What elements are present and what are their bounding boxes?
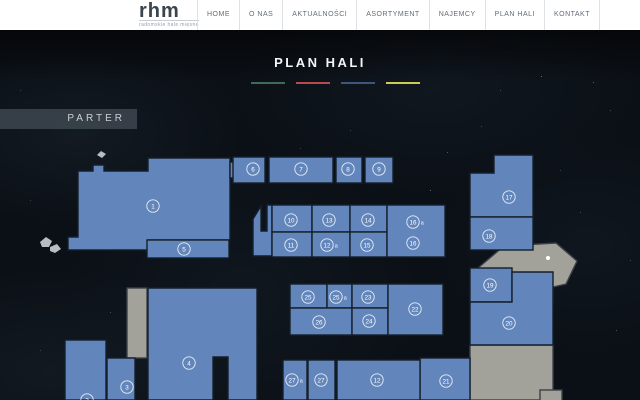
svg-text:17: 17 [505,194,513,201]
legend-dash-1 [251,82,285,84]
svg-text:1: 1 [151,203,155,210]
svg-text:21: 21 [442,378,450,385]
svg-text:a: a [300,378,303,384]
svg-text:25: 25 [332,294,340,301]
unit-4[interactable] [148,288,257,400]
svg-text:a: a [344,295,347,301]
svg-text:3: 3 [125,384,129,391]
svg-text:4: 4 [187,360,191,367]
plan-legend [251,82,420,84]
legend-dash-4 [386,82,420,84]
svg-text:14: 14 [364,217,372,224]
site-header: rhm radomskie hale mięsne HOMEO NASAKTUA… [0,0,640,30]
unit-1[interactable] [68,158,230,250]
svg-text:11: 11 [288,242,295,249]
nav-item-najemcy[interactable]: NAJEMCY [430,0,486,30]
svg-text:8: 8 [346,166,350,173]
rock-3 [97,151,106,158]
nav-item-asortyment[interactable]: ASORTYMENT [357,0,430,30]
unit-2[interactable] [65,340,106,400]
svg-text:10: 10 [287,217,295,224]
svg-text:19: 19 [486,282,494,289]
unit-18[interactable] [470,217,533,250]
floor-label: PARTER [0,109,137,129]
unit-6[interactable] [233,157,265,183]
svg-text:24: 24 [365,318,373,325]
svg-text:27: 27 [317,377,325,384]
gray-strip [127,288,147,358]
legend-dash-2 [296,82,330,84]
unit-3[interactable] [107,358,135,400]
nav-item-aktualno-ci[interactable]: AKTUALNOŚCI [283,0,357,30]
svg-text:9: 9 [377,166,381,173]
gray-box-small [540,390,562,400]
nav-item-home[interactable]: HOME [197,0,240,30]
svg-text:6: 6 [251,166,255,173]
svg-text:26: 26 [315,319,323,326]
svg-text:25: 25 [304,294,312,301]
marker-dot [546,256,550,260]
nav-item-kontakt[interactable]: KONTAKT [545,0,600,30]
svg-text:15: 15 [363,242,371,249]
svg-text:a: a [421,220,424,226]
logo-text: rhm [139,2,199,20]
page: 15678917181013141112a1516a162525a2326242… [0,0,640,400]
rock-1 [40,237,52,247]
unit-5[interactable] [147,240,229,258]
legend-dash-3 [341,82,375,84]
svg-text:a: a [335,243,338,249]
main-nav: HOMEO NASAKTUALNOŚCIASORTYMENTNAJEMCYPLA… [197,0,600,30]
rock-2 [50,244,61,253]
svg-text:16: 16 [409,240,417,247]
page-title: PLAN HALI [0,55,640,70]
site-logo[interactable]: rhm radomskie hale mięsne [139,2,199,28]
svg-text:27: 27 [288,377,296,384]
svg-text:23: 23 [364,294,372,301]
svg-text:12: 12 [373,377,381,384]
unit-16[interactable] [387,205,445,257]
svg-text:22: 22 [411,306,419,313]
corridor-piece [253,205,272,256]
svg-text:18: 18 [485,233,493,240]
nav-item-o-nas[interactable]: O NAS [240,0,283,30]
unit-12a[interactable] [312,232,350,257]
svg-text:20: 20 [505,320,513,327]
svg-text:5: 5 [182,246,186,253]
logo-tagline: radomskie hale mięsne [139,20,199,28]
svg-text:7: 7 [299,166,303,173]
unit-17[interactable] [470,155,533,217]
svg-text:16: 16 [409,219,417,226]
svg-text:13: 13 [325,217,333,224]
svg-text:12: 12 [323,242,331,249]
nav-item-plan-hali[interactable]: PLAN HALI [486,0,545,30]
